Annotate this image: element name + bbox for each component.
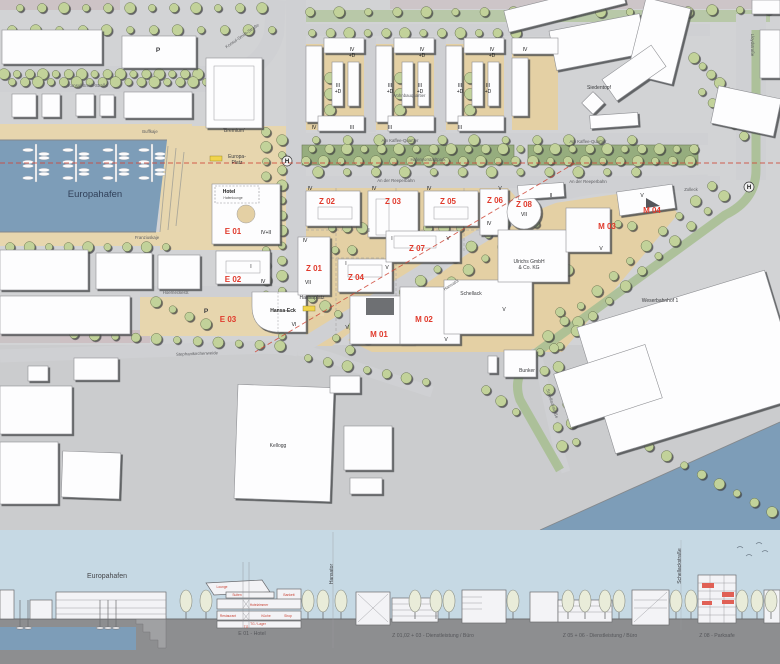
label-iv-ii: IV+II: [261, 230, 271, 236]
label-hotelzimmer: Hotelzimmer: [250, 603, 269, 607]
label-iii: III: [458, 125, 462, 131]
label-e-01-hotel: E 01 - Hotel: [238, 631, 265, 637]
label-d: +D: [335, 89, 342, 95]
section-drawing: EuropahafenHansatorSchellackstraßeE 01 -…: [0, 530, 780, 664]
label-iv: IV: [427, 186, 432, 192]
label-d: +D: [457, 89, 464, 95]
label-m-02: M 02: [415, 315, 433, 324]
bus-stop-marker: [303, 306, 315, 311]
label-z-04: Z 04: [348, 273, 365, 282]
label-z-08: Z 08: [516, 200, 533, 209]
label-z-08-parksafe: Z 08 - Parksafe: [699, 633, 735, 639]
label-bremium: 'Bremium': [223, 128, 245, 134]
label-tg-lager: TG / Lager: [250, 622, 267, 626]
label-z-01: Z 01: [306, 264, 323, 273]
label-schellack: Schellack: [460, 291, 482, 297]
label-iii: III: [350, 125, 354, 131]
label-hoerneckestr: Hoerneckestr.: [163, 290, 190, 295]
label-z-07: Z 07: [409, 244, 426, 253]
site-plan-page: E 01E 02E 03Z 01Z 02Z 03Z 04Z 05Z 06Z 07…: [0, 0, 780, 664]
label-vi: VI: [292, 322, 297, 328]
label-wohnbauquartier: Wohnbauquartier: [393, 93, 426, 98]
label-lloydstra-e: Lloydstraße: [750, 34, 755, 57]
label-p: P: [204, 308, 209, 315]
label-m-01: M 01: [370, 330, 388, 339]
label-iv: IV: [312, 125, 317, 131]
label-p: P: [156, 47, 161, 54]
label-zolleck: Zolleck: [684, 187, 698, 192]
label-an-der-reeperbahn: An der Reeperbahn: [377, 178, 415, 183]
label-h: H: [285, 159, 289, 165]
label-franziuskaje: Franziuskaje: [135, 235, 160, 240]
label-hafenlounge: Hafenlounge: [223, 196, 242, 200]
label-schellackstra-e: Schellackstraße: [677, 548, 683, 584]
label-e-01: E 01: [225, 227, 242, 236]
label-i: I: [345, 261, 346, 267]
label-m-04: M 04: [643, 206, 661, 215]
label-iv: IV: [303, 238, 308, 244]
label-e-02: E 02: [225, 275, 242, 284]
label-tg: TG: [244, 625, 249, 629]
label-am-kaffee-quartier: Am Kaffee-Quartier: [382, 138, 420, 143]
label-z-06: Z 06: [487, 196, 504, 205]
label-i: I: [368, 228, 369, 234]
label-z-03: Z 03: [385, 197, 402, 206]
site-plan-map: E 01E 02E 03Z 01Z 02Z 03Z 04Z 05Z 06Z 07…: [0, 0, 780, 664]
label-konsul-smidt-stra-e: Konsul-Smidt-Straße: [68, 83, 108, 88]
label-iv: IV: [372, 186, 377, 192]
label-d: +D: [419, 53, 426, 59]
label-buffkaje: Buffkaje: [142, 129, 158, 134]
label-k-che: Küche: [261, 614, 271, 618]
bus-stop-marker: [210, 156, 222, 161]
label-iv: IV: [523, 47, 528, 53]
parksafe-elevation: [698, 575, 736, 623]
label-hansaplatz: Hansaplatz: [299, 295, 325, 301]
label-z-05: Z 05: [440, 197, 457, 206]
label-restaurant: Restaurant: [220, 614, 236, 618]
label-h: H: [747, 185, 751, 191]
label-hansa-eck: Hansa-Eck: [270, 308, 296, 314]
label-co-kg: & Co. KG: [518, 265, 539, 271]
schellack-building: [444, 280, 532, 334]
label-vii: VII: [521, 212, 527, 218]
label-suiten: Suiten: [232, 593, 242, 597]
label-hafenvorstadtpark: Hafenvorstadtpark: [410, 157, 446, 162]
label-am-kaffee-quartier: Am Kaffee-Quartier: [570, 139, 608, 144]
label-d: +D: [489, 53, 496, 59]
label-platz: Platz: [231, 160, 243, 166]
label-z-01-02-03-dienstleistung-b-ro: Z 01,02 + 03 - Dienstleistung / Büro: [392, 633, 474, 639]
label-an-der-reeperbahn: An der Reeperbahn: [569, 179, 607, 184]
label-bankett: Bankett: [283, 593, 294, 597]
label-iv: IV: [261, 279, 266, 285]
label-vii: VII: [305, 280, 311, 286]
label-iv: IV: [487, 221, 492, 227]
ulrichs-building: [498, 230, 568, 282]
label-z-05-06-dienstleistung-b-ro: Z 05 + 06 - Dienstleistung / Büro: [563, 633, 638, 639]
label-e-03: E 03: [220, 315, 237, 324]
label-d: +D: [485, 89, 492, 95]
label-shop: Shop: [284, 614, 292, 618]
label-iv: IV: [308, 186, 313, 192]
label-iii: III: [388, 125, 392, 131]
label-m-03: M 03: [598, 222, 616, 231]
label-i: I: [391, 236, 392, 242]
label-kellogg: Kellogg: [270, 443, 287, 449]
label-hotel: Hotel: [223, 189, 236, 195]
label-ii: II: [550, 193, 553, 199]
label-europahafen: Europahafen: [68, 189, 122, 200]
label-hansator: Hansator: [329, 564, 335, 585]
bremium-building: [206, 58, 262, 128]
label-siedentopf: Siedentopf: [587, 85, 612, 91]
label-weserbahnhof-1: Weserbahnhof 1: [642, 298, 679, 304]
label-europahafen: Europahafen: [87, 573, 127, 580]
label-z-02: Z 02: [319, 197, 336, 206]
label-d: +D: [349, 53, 356, 59]
label-i: I: [250, 264, 251, 270]
label-bunker: Bunker: [519, 368, 535, 374]
label-lounge: Lounge: [216, 585, 227, 589]
